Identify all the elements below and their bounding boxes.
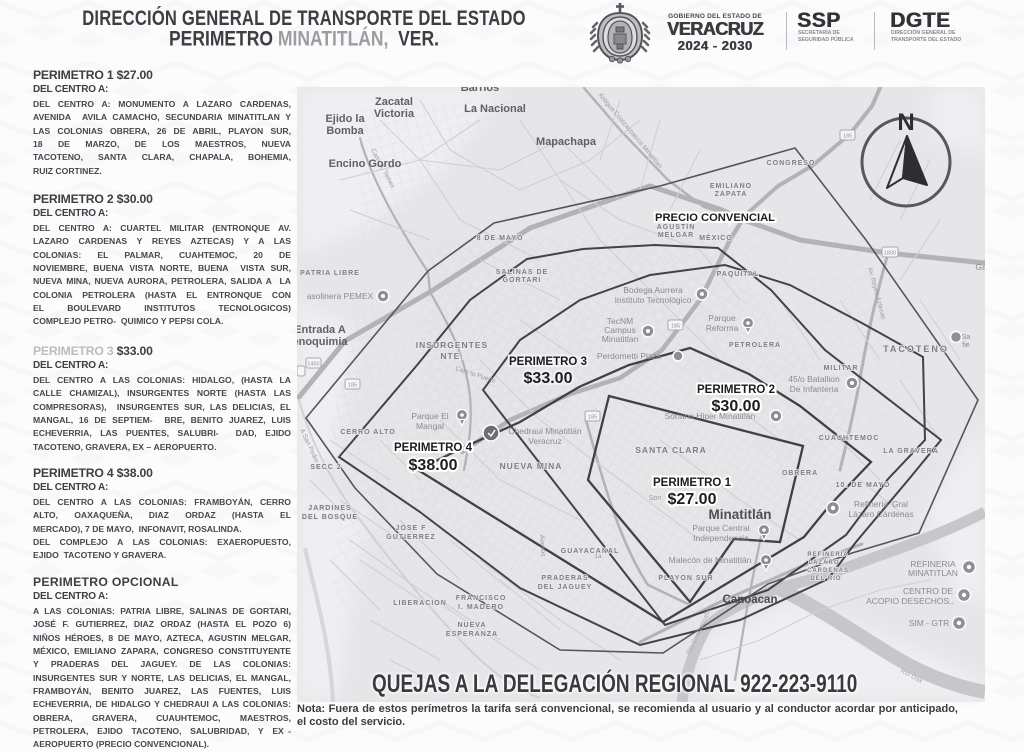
svg-text:Parque Central: Parque Central [692, 523, 749, 533]
svg-text:LAZARO: LAZARO [809, 560, 840, 566]
svg-text:MÉXICO: MÉXICO [699, 233, 733, 242]
svg-text:Mangal: Mangal [416, 421, 444, 431]
svg-text:185: 185 [588, 415, 597, 421]
svg-text:REFINERIA: REFINERIA [807, 552, 848, 558]
svg-text:Mapachapa: Mapachapa [536, 136, 597, 148]
svg-text:DEL RIO: DEL RIO [810, 576, 841, 582]
svg-text:185: 185 [671, 324, 680, 330]
svg-text:SALINAS DE: SALINAS DE [496, 269, 548, 276]
svg-text:GUAYACANAL: GUAYACANAL [561, 548, 620, 555]
svg-text:La Nacional: La Nacional [464, 103, 526, 115]
svg-text:GUTIERREZ: GUTIERREZ [386, 534, 435, 541]
svg-text:SIM - GTR: SIM - GTR [909, 618, 950, 628]
svg-text:CERRO ALTO: CERRO ALTO [340, 429, 395, 436]
svg-text:Malecón de Minatitlán: Malecón de Minatitlán [669, 555, 752, 565]
svg-text:OBRERA: OBRERA [782, 470, 818, 477]
svg-text:NUEVA: NUEVA [458, 622, 487, 629]
svg-text:enoquimia: enoquimia [297, 336, 348, 348]
svg-text:Bomba: Bomba [326, 125, 364, 137]
svg-text:JOSE F: JOSE F [396, 525, 427, 532]
svg-text:Ejido la: Ejido la [325, 113, 365, 125]
svg-text:45/o Batallion: 45/o Batallion [788, 374, 840, 384]
svg-text:FRANCISCO: FRANCISCO [456, 595, 507, 602]
svg-text:Canoacan: Canoacan [723, 594, 778, 606]
svg-text:Independencia: Independencia [693, 533, 749, 543]
svg-text:CUAUHTEMOC: CUAUHTEMOC [819, 435, 880, 442]
svg-text:Ga: Ga [975, 262, 985, 272]
svg-text:NTE.: NTE. [440, 351, 463, 361]
svg-text:PLAYON SUR: PLAYON SUR [658, 575, 713, 582]
svg-text:Victoria: Victoria [374, 108, 415, 120]
svg-text:Zacatal: Zacatal [375, 96, 413, 108]
svg-text:CARDENAS: CARDENAS [807, 568, 849, 574]
svg-text:EMILIANO: EMILIANO [710, 183, 752, 190]
svg-text:ESPERANZA: ESPERANZA [446, 631, 498, 638]
svg-text:ZAPATA: ZAPATA [715, 191, 748, 198]
svg-text:Chedraui Minatitlán: Chedraui Minatitlán [508, 426, 582, 436]
svg-text:CENTRO DE: CENTRO DE [903, 586, 953, 596]
svg-text:Bodega Aurrera: Bodega Aurrera [623, 285, 683, 295]
svg-text:LIBERACION: LIBERACION [393, 600, 447, 607]
svg-text:N: N [897, 109, 914, 136]
svg-text:Barrios: Barrios [461, 87, 500, 94]
svg-text:$30.00: $30.00 [712, 398, 761, 415]
svg-text:MINATITLAN: MINATITLAN [908, 568, 958, 578]
svg-text:Lázaro Cárdenas: Lázaro Cárdenas [848, 509, 913, 519]
svg-text:Perdometti Pizza: Perdometti Pizza [597, 351, 662, 361]
svg-text:PERIMETRO 4: PERIMETRO 4 [394, 442, 473, 454]
svg-text:Minatitlan: Minatitlan [602, 334, 639, 344]
svg-text:PERIMETRO 1: PERIMETRO 1 [653, 477, 732, 489]
svg-text:LA GRAVERA: LA GRAVERA [883, 448, 939, 455]
svg-text:185: 185 [843, 134, 852, 140]
svg-text:asolinera PEMEX: asolinera PEMEX [307, 291, 374, 301]
svg-text:$33.00: $33.00 [524, 370, 573, 387]
svg-text:JARDINES: JARDINES [308, 505, 351, 512]
svg-text:$27.00: $27.00 [668, 491, 717, 508]
svg-text:fie: fie [962, 342, 970, 349]
svg-text:DEL BOSQUE: DEL BOSQUE [302, 514, 358, 521]
svg-text:Instituto Tecnológico: Instituto Tecnológico [615, 295, 692, 305]
svg-text:Parque: Parque [708, 313, 736, 323]
svg-text:8 DE MAYO: 8 DE MAYO [477, 235, 524, 242]
svg-text:Minatitlán: Minatitlán [709, 507, 772, 522]
svg-text:Son: Son [649, 495, 662, 502]
svg-text:10. DE MAYO: 10. DE MAYO [836, 482, 891, 489]
svg-text:Reforma: Reforma [706, 323, 739, 333]
svg-text:DEL JAGUEY: DEL JAGUEY [538, 584, 593, 591]
svg-text:1a: 1a [594, 553, 602, 560]
svg-text:SECC 2: SECC 2 [310, 464, 341, 471]
svg-text:$38.00: $38.00 [409, 457, 458, 474]
svg-text:CONGRESO: CONGRESO [767, 160, 816, 167]
svg-text:SANTA CLARA: SANTA CLARA [635, 445, 706, 455]
svg-text:INSURGENTES: INSURGENTES [416, 340, 488, 350]
svg-text:1800: 1800 [884, 251, 896, 257]
svg-text:Parque El: Parque El [411, 411, 448, 421]
svg-text:ACOPIO DESECHOS..: ACOPIO DESECHOS.. [866, 596, 954, 606]
svg-text:PATRIA LIBRE: PATRIA LIBRE [300, 270, 360, 277]
svg-text:PERIMETRO 3: PERIMETRO 3 [509, 356, 587, 368]
svg-text:PRADERAS: PRADERAS [541, 575, 588, 582]
svg-text:TACOTENO: TACOTENO [883, 344, 949, 354]
svg-text:GORTARI: GORTARI [503, 277, 542, 284]
svg-text:PAQUITAL: PAQUITAL [717, 271, 760, 278]
svg-text:PETROLERA: PETROLERA [729, 342, 781, 349]
svg-text:NUEVA MINA: NUEVA MINA [500, 461, 563, 471]
svg-text:MILITAR: MILITAR [824, 365, 859, 372]
svg-text:De Infanteria: De Infanteria [790, 384, 839, 394]
svg-text:185: 185 [348, 383, 357, 389]
svg-text:Refineria 'Gral: Refineria 'Gral [854, 499, 908, 509]
svg-text:MELGAR: MELGAR [658, 232, 694, 239]
svg-text:Encino Gordo: Encino Gordo [329, 158, 402, 170]
svg-text:1450: 1450 [307, 362, 319, 368]
svg-text:PRECIO CONVENCIAL: PRECIO CONVENCIAL [655, 212, 775, 224]
svg-text:PERIMETRO 2: PERIMETRO 2 [697, 384, 775, 396]
svg-text:Entrada A: Entrada A [297, 324, 346, 336]
svg-text:Sa: Sa [962, 334, 971, 341]
svg-text:I. MADERO: I. MADERO [458, 604, 504, 611]
svg-text:Veracruz: Veracruz [528, 436, 562, 446]
